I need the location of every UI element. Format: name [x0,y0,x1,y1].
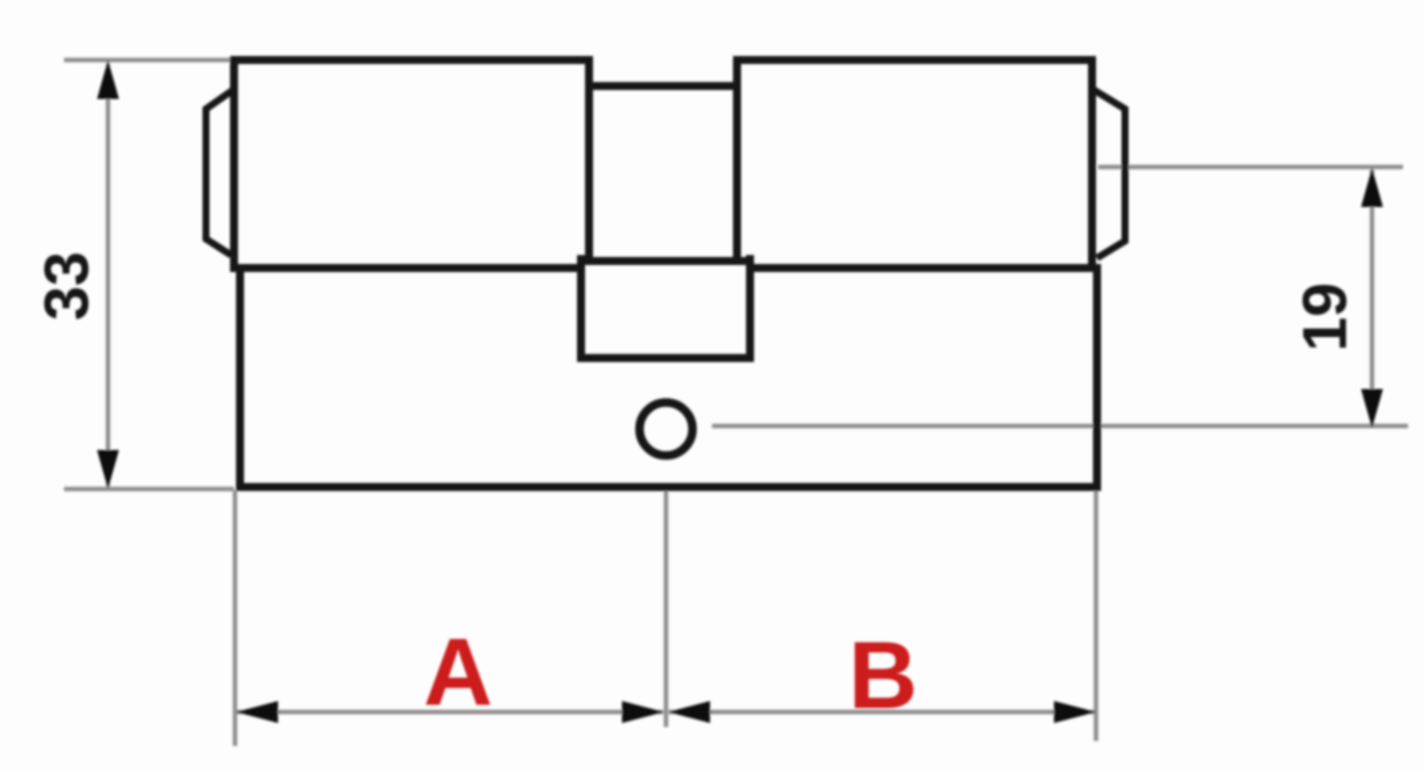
svg-text:B: B [848,622,917,729]
svg-text:33: 33 [33,252,102,321]
svg-text:A: A [423,619,492,726]
svg-text:19: 19 [1291,283,1360,352]
